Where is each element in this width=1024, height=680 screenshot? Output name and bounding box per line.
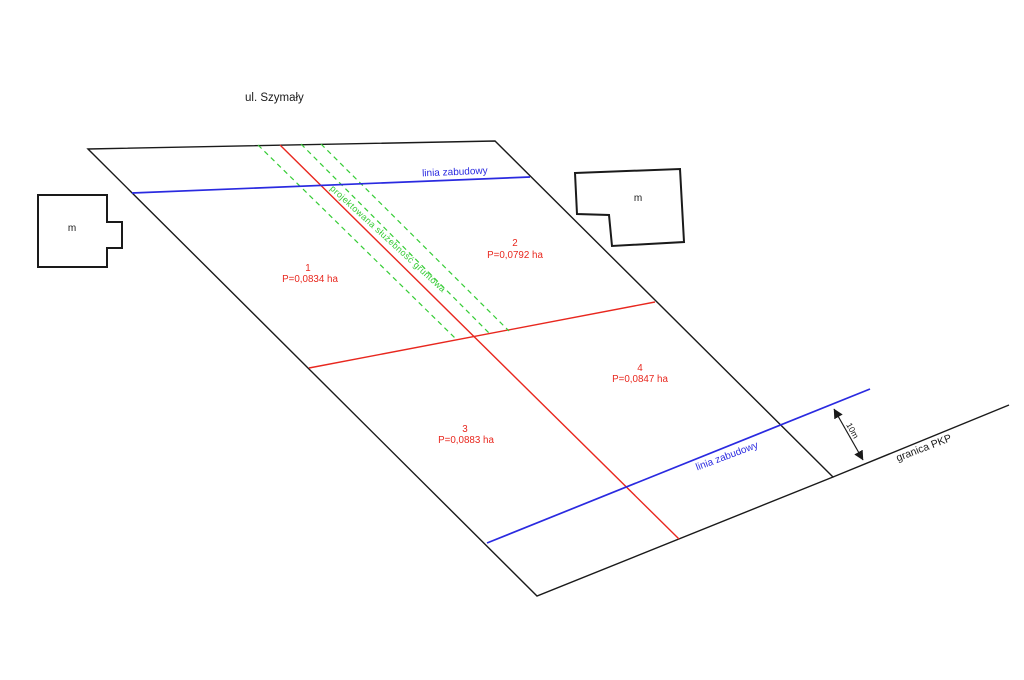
railway-boundary-line	[833, 405, 1009, 477]
parcel-boundary	[88, 141, 833, 596]
building-right-outline	[575, 169, 684, 246]
division-line-horizontal	[309, 302, 655, 368]
building-left-outline	[38, 195, 122, 267]
parcel-3-number: 3	[462, 424, 468, 435]
parcel-2-area: P=0,0792 ha	[487, 250, 543, 261]
parcel-4-area: P=0,0847 ha	[612, 374, 668, 385]
building-line-labels-group: linia zabudowy linia zabudowy	[422, 166, 760, 474]
division-lines-group	[280, 145, 679, 539]
parcel-4-number: 4	[637, 363, 643, 374]
parcel-3-area: P=0,0883 ha	[438, 435, 494, 446]
parcel-labels-group: 1 P=0,0834 ha 2 P=0,0792 ha 3 P=0,0883 h…	[282, 238, 668, 446]
parcel-1-area: P=0,0834 ha	[282, 274, 338, 285]
building-line-lower-label: linia zabudowy	[694, 440, 759, 473]
street-label: ul. Szymały	[245, 92, 304, 104]
building-right-marker: m	[634, 193, 642, 204]
survey-plan: ul. Szymały 1 P=0,0834 ha 2 P=0,0792 ha …	[0, 0, 1024, 680]
division-line-vertical	[280, 145, 679, 539]
building-limit-lines-group	[132, 177, 870, 543]
parcel-1-number: 1	[305, 263, 310, 274]
building-line-upper-label: linia zabudowy	[422, 166, 488, 180]
parcel-2-number: 2	[512, 238, 517, 249]
building-line-lower	[487, 389, 870, 543]
survey-plan-drawing: ul. Szymały 1 P=0,0834 ha 2 P=0,0792 ha …	[0, 0, 1024, 680]
boundary-lines-group	[88, 141, 1009, 596]
building-left-marker: m	[68, 223, 76, 234]
easement-label: projektowana służebność gruntowa	[328, 183, 448, 294]
